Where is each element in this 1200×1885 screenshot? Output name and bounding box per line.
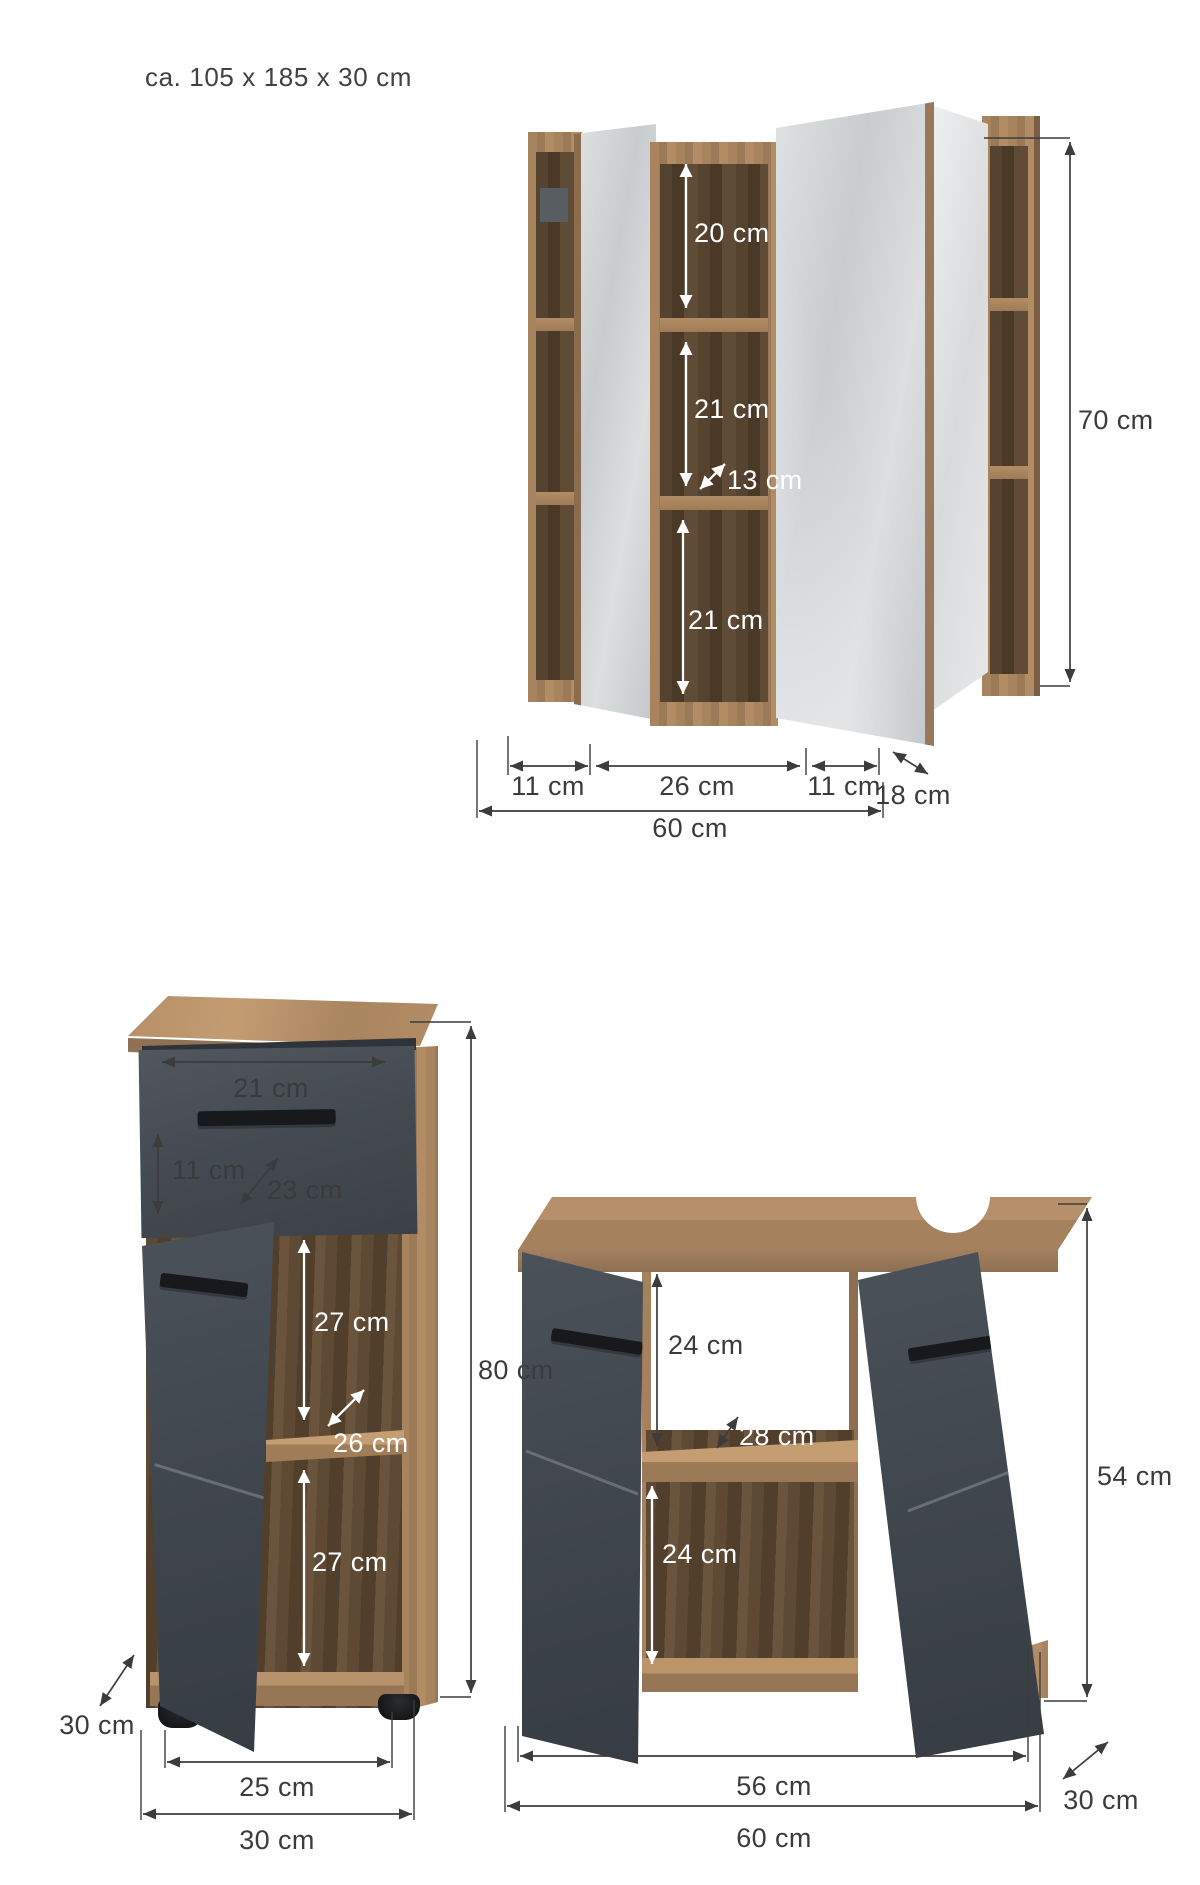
mirror-cabinet-right-shelf <box>990 298 1028 311</box>
mirror-cabinet-left-door <box>574 124 656 728</box>
mirror-cabinet-middle-shelf <box>660 496 768 510</box>
dim-mirror-total-depth: 18 cm <box>875 781 951 810</box>
drawer-handle <box>198 1109 336 1126</box>
mirror-cabinet-right-frame <box>982 116 1040 696</box>
base-cabinet-foot <box>378 1694 420 1720</box>
dim-mirror-right-door-width: 11 cm <box>807 772 881 801</box>
base-cabinet-door-handle <box>159 1273 248 1298</box>
mirror-cabinet-left-shelf <box>536 318 574 331</box>
mirror-cabinet-left-interior <box>536 152 574 680</box>
overall-dimensions-title: ca. 105 x 185 x 30 cm <box>145 62 412 93</box>
dim-mirror-total-height: 70 cm <box>1078 406 1154 435</box>
mirror-cabinet-left-door-edge <box>574 124 581 728</box>
vanity-bottom-panel <box>642 1658 858 1692</box>
door-groove <box>525 1450 638 1496</box>
dim-base-drawer-depth: 23 cm <box>267 1176 343 1205</box>
door-groove <box>907 1467 1020 1513</box>
dim-vanity-shelf-depth: 28 cm <box>739 1422 815 1451</box>
dim-vanity-inner-width: 56 cm <box>736 1772 812 1801</box>
dim-base-total-width: 30 cm <box>239 1826 315 1855</box>
vanity-top-panel <box>518 1195 1094 1251</box>
mirror-cabinet-right-door <box>928 100 988 718</box>
dim-mirror-middle-section-width: 26 cm <box>659 772 735 801</box>
mirror-cabinet-middle-door <box>776 102 934 750</box>
mirror-cabinet-left-shelf <box>536 492 574 505</box>
dim-mirror-top-shelf-height: 20 cm <box>694 219 770 248</box>
mirror-cabinet-right-shelf <box>990 466 1028 479</box>
dim-base-shelf-depth: 26 cm <box>333 1429 409 1458</box>
dim-mirror-middle-shelf-height: 21 cm <box>694 395 770 424</box>
door-groove <box>154 1463 266 1500</box>
mirror-sheen <box>776 102 934 750</box>
mirror-cabinet-right-edge <box>1034 116 1040 696</box>
dim-base-upper-compartment-height: 27 cm <box>314 1308 390 1337</box>
vanity-left-door-handle <box>551 1328 644 1355</box>
vanity-right-door-handle <box>908 1336 993 1362</box>
mirror-cabinet-hinge <box>540 188 568 222</box>
dim-vanity-total-depth: 30 cm <box>1063 1786 1139 1815</box>
dim-vanity-total-width: 60 cm <box>736 1824 812 1853</box>
dim-vanity-lower-compartment-height: 24 cm <box>662 1540 738 1569</box>
dim-mirror-total-width: 60 cm <box>652 814 728 843</box>
mirror-cabinet-right-interior <box>990 146 1028 674</box>
dim-base-total-depth: 30 cm <box>59 1711 135 1740</box>
dim-mirror-inner-depth: 13 cm <box>727 466 803 495</box>
mirror-cabinet-left-frame <box>528 132 582 702</box>
vanity-right-door <box>852 1242 1048 1768</box>
product-dimension-diagram: ca. 105 x 185 x 30 cm <box>0 0 1200 1885</box>
vanity-pipe-notch <box>916 1159 990 1233</box>
dim-base-total-height: 80 cm <box>478 1356 554 1385</box>
dim-base-drawer-width: 21 cm <box>233 1074 309 1103</box>
dim-vanity-upper-compartment-height: 24 cm <box>668 1331 744 1360</box>
dim-mirror-left-door-width: 11 cm <box>511 772 585 801</box>
vanity-left-door <box>520 1245 646 1771</box>
dim-vanity-total-height: 54 cm <box>1097 1462 1173 1491</box>
dim-base-lower-compartment-height: 27 cm <box>312 1548 388 1577</box>
dim-mirror-bottom-shelf-height: 21 cm <box>688 606 764 635</box>
dim-base-drawer-front-height: 11 cm <box>172 1156 246 1185</box>
dim-base-door-width: 25 cm <box>239 1773 315 1802</box>
mirror-cabinet-middle-shelf <box>660 318 768 332</box>
